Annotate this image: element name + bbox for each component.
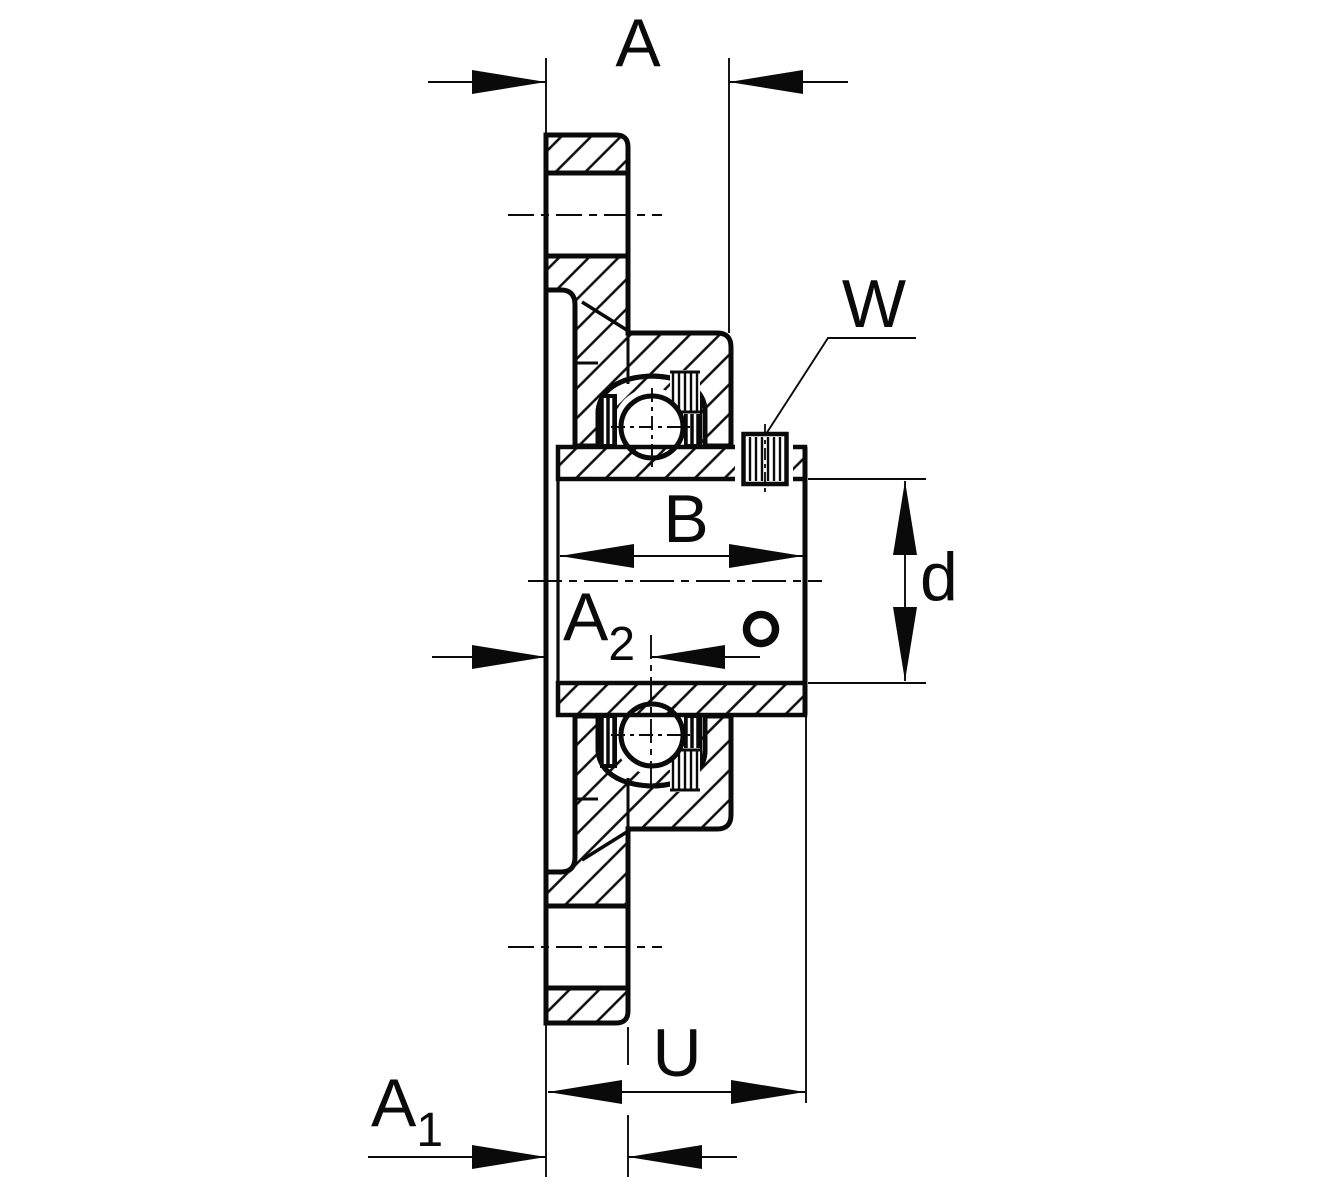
flange-top-band [546, 135, 628, 173]
dimensions [368, 58, 926, 1177]
arrowhead [893, 607, 917, 681]
seal-top-left [600, 394, 617, 446]
arrowhead [472, 1145, 546, 1169]
dim-d [808, 479, 926, 683]
arrowhead [651, 645, 725, 669]
grub-screw [735, 424, 793, 494]
engineering-drawing: A W B d A2 U A1 [0, 0, 1330, 1200]
leader-W [766, 338, 916, 434]
label-d: d [920, 539, 958, 615]
label-U: U [652, 1015, 701, 1091]
arrowhead [560, 544, 634, 568]
centerlines [508, 215, 822, 947]
arrowhead [472, 645, 546, 669]
flange-bottom-band [546, 988, 628, 1023]
label-A1: A1 [371, 1065, 443, 1157]
label-A1-sub: 1 [416, 1104, 443, 1157]
label-A1-base: A [371, 1065, 417, 1141]
sleeve-bottom-bar [558, 683, 805, 715]
label-A2-base: A [563, 579, 609, 655]
arrowhead [548, 1080, 622, 1104]
arrowhead [893, 481, 917, 555]
label-A2: A2 [563, 579, 635, 671]
arrowhead [628, 1145, 702, 1169]
inner-ring-sleeve [558, 424, 805, 715]
label-A: A [615, 5, 661, 81]
label-B: B [663, 481, 708, 557]
dim-A [428, 58, 848, 333]
arrowhead [729, 70, 803, 94]
arrowhead [731, 1080, 805, 1104]
arrowhead [729, 544, 803, 568]
set-screw-hole-side-view [747, 615, 776, 644]
arrowhead [472, 70, 546, 94]
drawing-canvas: A W B d A2 U A1 [0, 0, 1330, 1200]
label-A2-sub: 2 [608, 618, 635, 671]
seal-bottom-left [600, 716, 617, 768]
label-W: W [842, 266, 906, 342]
